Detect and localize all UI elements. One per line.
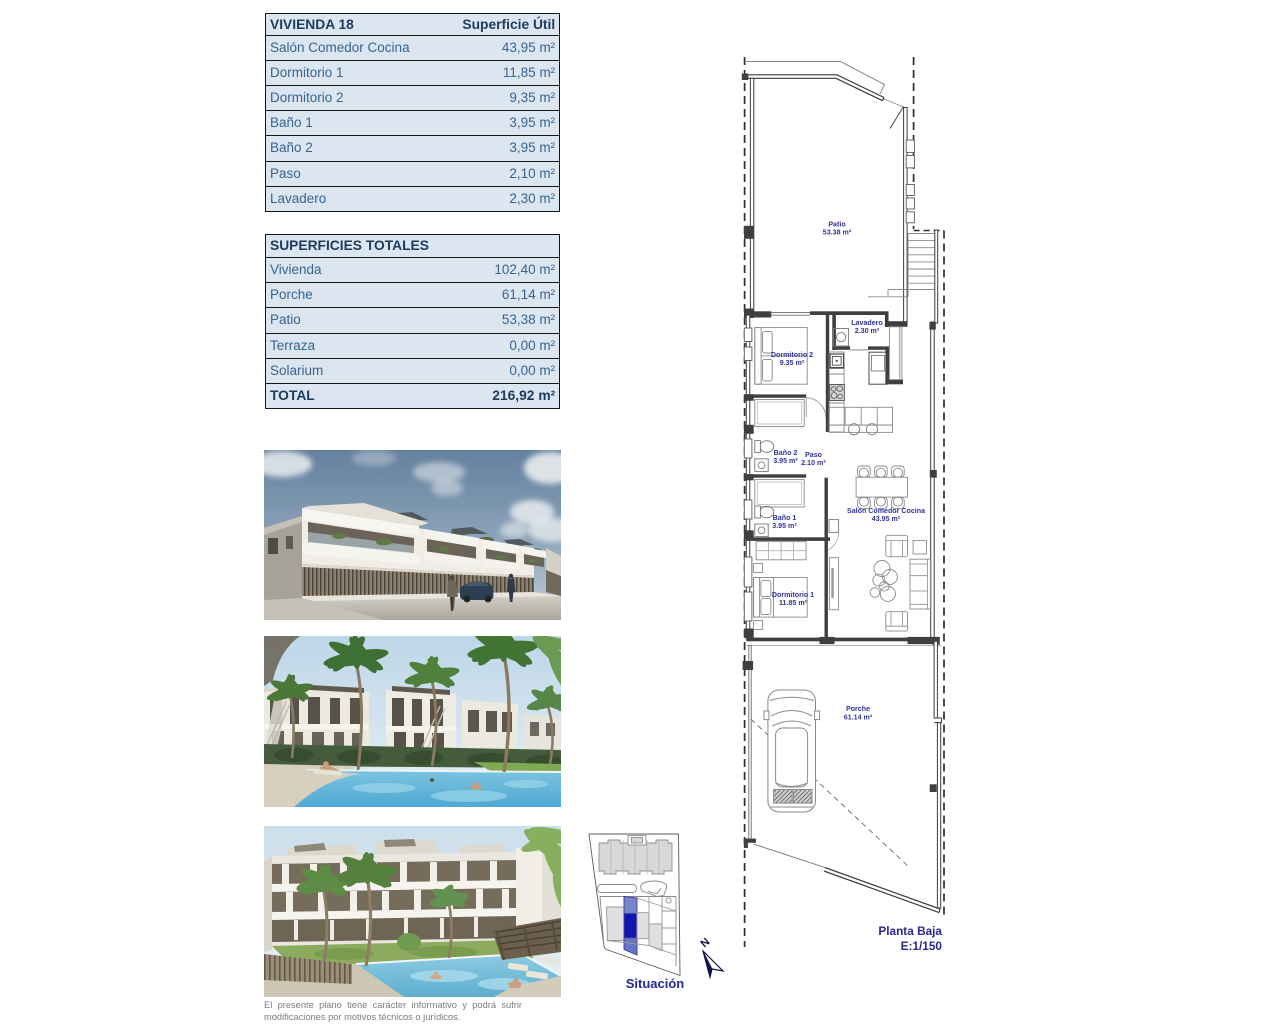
svg-text:53.38 m²: 53.38 m² <box>823 229 852 237</box>
svg-text:9.35 m²: 9.35 m² <box>780 359 805 367</box>
svg-text:Paso: Paso <box>805 451 823 459</box>
svg-text:N: N <box>698 936 712 950</box>
svg-text:Porche: Porche <box>846 705 870 713</box>
svg-text:Dormitorio 2: Dormitorio 2 <box>771 351 813 359</box>
svg-text:Dormitorio 1: Dormitorio 1 <box>772 591 814 599</box>
svg-text:61.14 m²: 61.14 m² <box>844 714 873 722</box>
svg-text:Salón Comedor Cocina: Salón Comedor Cocina <box>847 507 925 515</box>
svg-text:2.10 m²: 2.10 m² <box>801 459 826 467</box>
svg-text:3.95 m²: 3.95 m² <box>772 522 797 530</box>
svg-text:43.95 m²: 43.95 m² <box>872 515 901 523</box>
svg-text:Lavadero: Lavadero <box>851 319 883 327</box>
svg-text:3.95 m²: 3.95 m² <box>773 457 798 465</box>
svg-text:Patio: Patio <box>828 221 846 229</box>
svg-text:Baño 1: Baño 1 <box>773 514 797 522</box>
svg-text:2.30 m²: 2.30 m² <box>855 327 880 335</box>
svg-text:Baño 2: Baño 2 <box>774 449 798 457</box>
svg-text:11.85 m²: 11.85 m² <box>779 599 808 607</box>
